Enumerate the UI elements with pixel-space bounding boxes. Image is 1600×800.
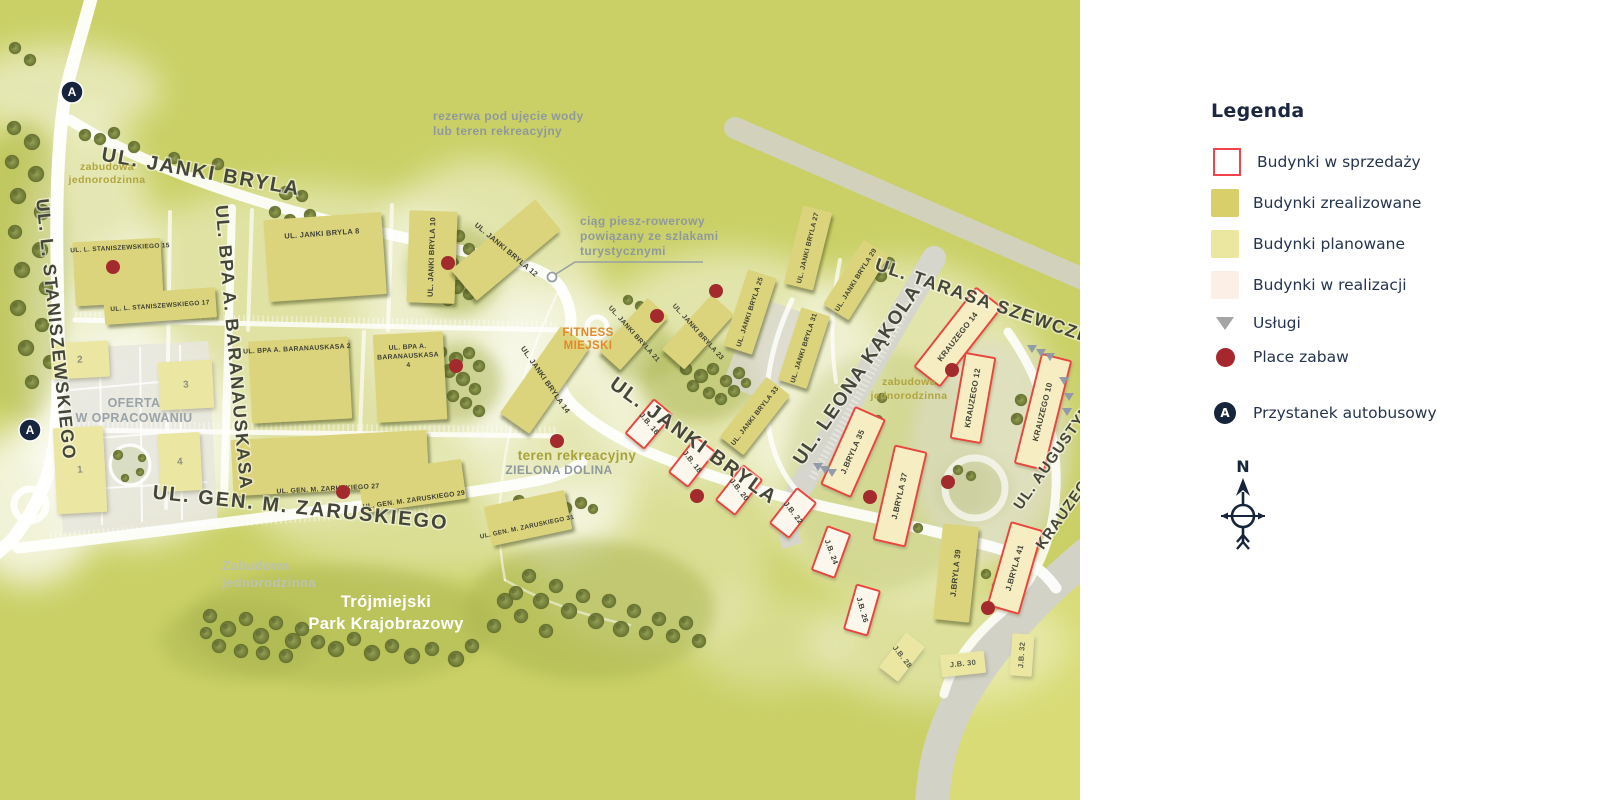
legend-item-services: Usługi: [1211, 312, 1600, 334]
legend-label: Przystanek autobusowy: [1253, 404, 1437, 422]
playground-marker: [863, 490, 877, 504]
playground-marker: [981, 601, 995, 615]
planned-swatch-icon: [1211, 230, 1239, 258]
legend-panel: Legenda Budynki w sprzedaży Budynki zrea…: [1080, 0, 1600, 800]
completed-swatch-icon: [1211, 189, 1239, 217]
playground-marker: [650, 309, 664, 323]
area-label-fitness-miejski: FITNESSMIEJSKI: [562, 327, 613, 352]
building-label: 4: [177, 456, 184, 467]
bike-path-point: [548, 273, 557, 282]
area-label-zabudowa-jednorodzinna: zabudowajednorodzinna: [68, 161, 146, 186]
legend-label: Budynki w sprzedaży: [1257, 153, 1421, 171]
playground-marker: [550, 434, 564, 448]
playground-dot-icon: [1211, 346, 1239, 368]
bus-stop-icon: A: [1211, 402, 1239, 424]
legend-item-in-progress: Budynki w realizacji: [1211, 271, 1600, 299]
legend-label: Place zabaw: [1253, 348, 1349, 366]
in-progress-swatch-icon: [1211, 271, 1239, 299]
playground-marker: [449, 359, 463, 373]
legend-item-for-sale: Budynki w sprzedaży: [1211, 148, 1600, 176]
svg-text:A: A: [26, 423, 35, 437]
playground-marker: [336, 485, 350, 499]
legend-item-playgrounds: Place zabaw: [1211, 346, 1600, 368]
bus-stop-marker: A: [19, 419, 41, 441]
playground-marker: [709, 284, 723, 298]
legend-label: Usługi: [1253, 314, 1301, 332]
playground-marker: [106, 260, 120, 274]
building-label: 2: [77, 354, 84, 365]
compass-n-label: N: [1236, 457, 1249, 476]
legend-item-completed: Budynki zrealizowane: [1211, 189, 1600, 217]
estate-map: UL. L. STANISZEWSKIEGO 15UL. L. STANISZE…: [0, 0, 1080, 800]
area-label-rezerwa-pod-ujęcie-wody-lub-teren-rekreacyjny: rezerwa pod ujęcie wodylub teren rekreac…: [433, 109, 584, 138]
area-label-zielona-dolina: ZIELONA DOLINA: [505, 463, 612, 477]
playground-marker: [690, 489, 704, 503]
building-label: J.B. 32: [1016, 642, 1027, 669]
compass-icon: N: [1208, 452, 1278, 556]
legend-label: Budynki zrealizowane: [1253, 194, 1421, 212]
playground-marker: [441, 256, 455, 270]
bus-stop-marker: A: [61, 81, 83, 103]
legend-label: Budynki w realizacji: [1253, 276, 1407, 294]
building-label: 1: [77, 464, 84, 475]
services-triangle-icon: [1211, 312, 1239, 334]
for-sale-swatch-icon: [1213, 148, 1241, 176]
estate-map-svg: UL. L. STANISZEWSKIEGO 15UL. L. STANISZE…: [0, 0, 1080, 800]
site-plan-page: UL. L. STANISZEWSKIEGO 15UL. L. STANISZE…: [0, 0, 1600, 800]
legend-title: Legenda: [1211, 100, 1600, 122]
legend-item-bus-stop: A Przystanek autobusowy: [1211, 402, 1600, 424]
playground-marker: [945, 363, 959, 377]
building-label: 3: [183, 379, 190, 390]
legend-label: Budynki planowane: [1253, 235, 1405, 253]
playground-marker: [941, 475, 955, 489]
building-ul-janki-bryla-8: [263, 212, 386, 302]
area-label-teren-rekreacyjny: teren rekreacyjny: [518, 448, 637, 463]
svg-text:A: A: [68, 85, 77, 99]
legend-item-planned: Budynki planowane: [1211, 230, 1600, 258]
